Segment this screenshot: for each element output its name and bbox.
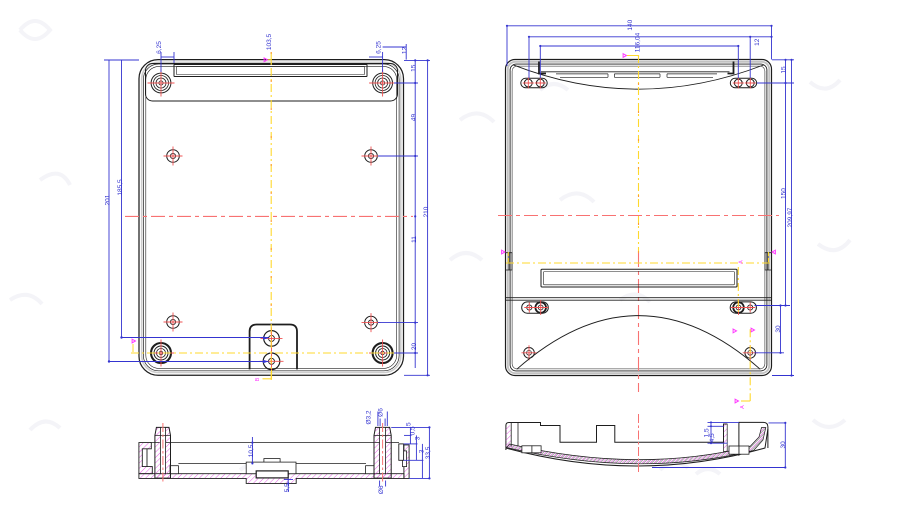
svg-text:6,25: 6,25: [375, 41, 382, 54]
svg-text:30: 30: [775, 325, 782, 333]
svg-text:4,5: 4,5: [709, 433, 716, 442]
svg-text:201: 201: [105, 194, 112, 205]
svg-text:209,97: 209,97: [787, 207, 794, 227]
svg-text:140: 140: [627, 19, 634, 30]
svg-text:11: 11: [411, 236, 418, 243]
svg-text:6,25: 6,25: [156, 41, 163, 54]
svg-text:10,5: 10,5: [248, 444, 255, 457]
svg-text:12: 12: [754, 38, 761, 46]
svg-text:B: B: [255, 377, 261, 381]
svg-text:210: 210: [423, 206, 430, 217]
svg-text:49: 49: [410, 114, 417, 122]
svg-text:A: A: [739, 260, 745, 264]
svg-text:150: 150: [781, 188, 788, 199]
svg-text:Ø6: Ø6: [378, 485, 385, 494]
svg-text:116,04: 116,04: [635, 32, 642, 52]
svg-text:185,5: 185,5: [117, 179, 124, 196]
svg-text:33,5: 33,5: [425, 446, 432, 459]
svg-text:3: 3: [415, 436, 422, 440]
svg-text:15: 15: [781, 66, 788, 74]
svg-text:0,5: 0,5: [410, 426, 417, 435]
svg-text:15: 15: [410, 64, 417, 72]
svg-text:Ø6: Ø6: [378, 408, 385, 417]
svg-text:12: 12: [401, 47, 408, 55]
svg-text:5: 5: [405, 422, 412, 426]
svg-text:Ø3,2: Ø3,2: [366, 410, 373, 424]
svg-text:A: A: [740, 405, 746, 409]
svg-text:30: 30: [780, 441, 787, 449]
svg-text:103,5: 103,5: [266, 33, 273, 50]
svg-text:5,5: 5,5: [284, 483, 291, 492]
svg-text:20: 20: [411, 343, 418, 351]
